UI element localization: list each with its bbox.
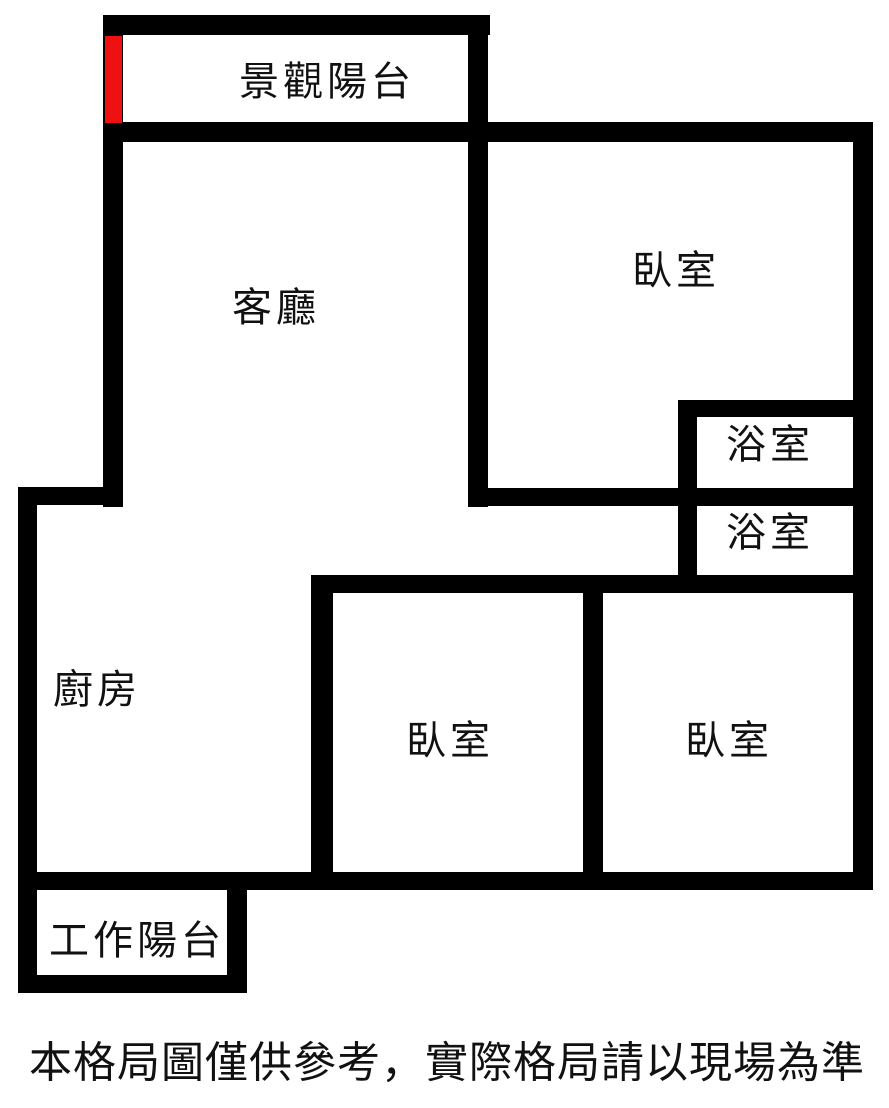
room-label-bedroom-right: 臥室	[685, 721, 773, 761]
wall-living-left	[103, 122, 123, 507]
room-label-bathroom-lower: 浴室	[726, 513, 814, 553]
wall-work-balcony-bottom	[18, 975, 247, 993]
room-label-kitchen: 廚房	[53, 670, 141, 710]
room-label-work-balcony: 工作陽台	[49, 921, 225, 961]
room-label-bedroom-middle: 臥室	[406, 721, 494, 761]
wall-balcony-top	[103, 15, 490, 35]
wall-bedroom-middle-left	[311, 575, 333, 890]
wall-bedroom-divider	[583, 575, 603, 890]
room-label-scenic-balcony: 景觀陽台	[239, 62, 415, 102]
disclaimer-text: 本格局圖僅供參考，實際格局請以現場為準	[29, 1043, 865, 1086]
room-label-bathroom-upper: 浴室	[726, 425, 814, 465]
wall-right-exterior	[853, 122, 873, 890]
wall-bottom-exterior	[18, 872, 873, 890]
room-label-bedroom-top: 臥室	[632, 251, 720, 291]
wall-living-bedroom-divider	[468, 15, 488, 507]
wall-left-exterior	[18, 487, 37, 993]
room-label-living-room: 客廳	[232, 288, 320, 328]
entrance-marker	[105, 36, 122, 123]
wall-bedroom-bottom-bath-divider	[468, 488, 873, 506]
wall-bathroom-top	[678, 400, 873, 417]
wall-top-main	[103, 122, 873, 142]
floor-plan: 景觀陽台 客廳 臥室 浴室 浴室 廚房 臥室 臥室 工作陽台 本格局圖僅供參考，…	[0, 0, 889, 1108]
